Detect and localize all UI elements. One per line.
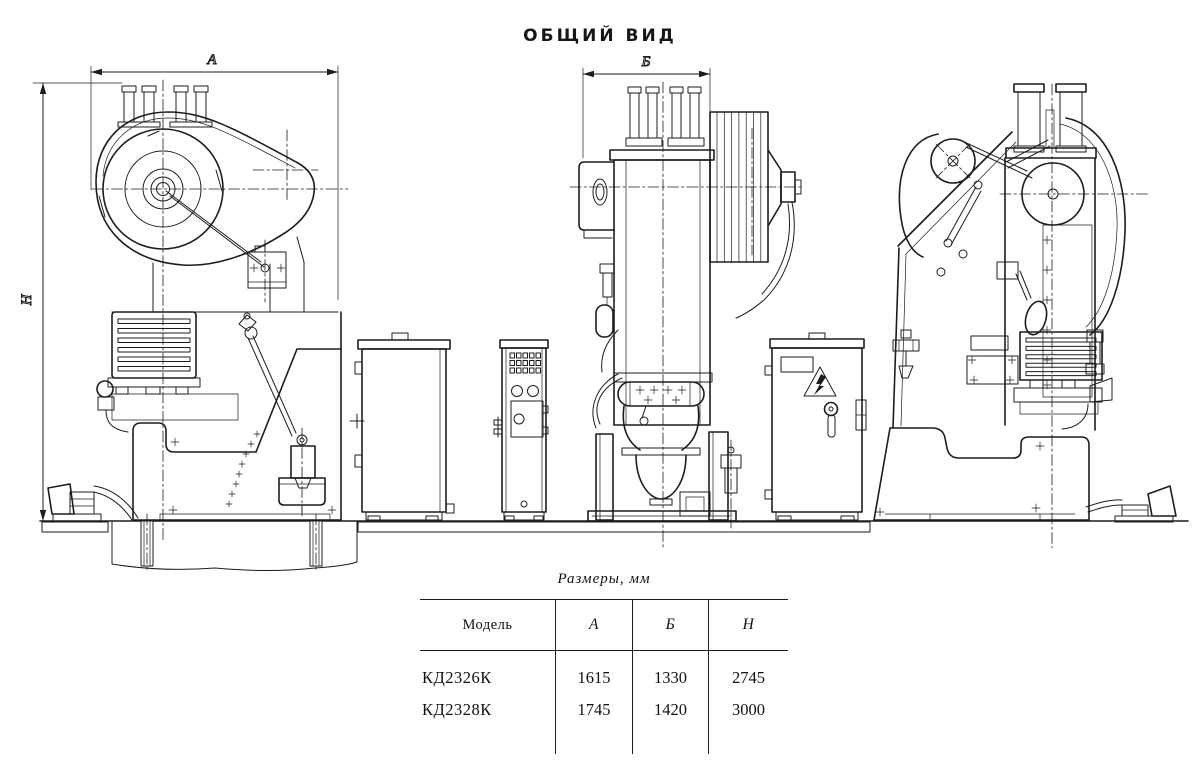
- table-spacer: [420, 651, 555, 662]
- table-cell-b: 1330: [632, 662, 708, 694]
- louver-grille: [108, 312, 200, 394]
- side-bracket: [579, 162, 614, 238]
- bolster-throat: [622, 406, 700, 505]
- anchor-bolt: [310, 514, 322, 572]
- table-spacer: [708, 726, 788, 754]
- high-voltage-sign: [804, 367, 836, 396]
- nameplate: [781, 357, 813, 372]
- table-header-h: Н: [708, 600, 788, 651]
- table-cell-b: 1420: [632, 694, 708, 726]
- front-column: [596, 434, 613, 520]
- panel-door: [511, 401, 543, 437]
- brake-rod: [166, 191, 286, 302]
- side-valve: [97, 381, 128, 432]
- dimensions-table: Размеры, мм Модель А Б Н КД2326К 1615 13…: [420, 568, 788, 754]
- table-header-a: А: [555, 600, 632, 651]
- air-valve: [596, 264, 614, 337]
- dim-b-label: Б: [641, 54, 651, 70]
- tie-rods: [626, 87, 704, 146]
- dimension-b: Б: [583, 54, 710, 158]
- table-header-b: Б: [632, 600, 708, 651]
- press-base: [874, 428, 1089, 520]
- control-pedestal: [494, 340, 548, 521]
- motor-pulley: [931, 139, 975, 183]
- dim-h-label: Н: [19, 293, 35, 306]
- control-knob: [528, 386, 539, 397]
- dim-a-label: А: [206, 52, 217, 68]
- side-valve: [893, 330, 919, 378]
- table-cell-a: 1745: [555, 694, 632, 726]
- clutch-housing: [710, 112, 801, 318]
- nameplate: [971, 336, 1008, 350]
- table-cell-model: КД2328К: [420, 694, 555, 726]
- drawing-sheet: ОБЩИЙ ВИД: [0, 0, 1200, 774]
- table-cell-a: 1615: [555, 662, 632, 694]
- hinge: [355, 362, 362, 374]
- die-set: [279, 428, 325, 516]
- hinge: [355, 455, 362, 467]
- button-grid: [510, 353, 541, 373]
- table-spacer: [555, 726, 632, 754]
- tie-rods: [118, 86, 212, 127]
- control-knob: [512, 386, 523, 397]
- table-spacer: [632, 726, 708, 754]
- foot-pedal-left: [48, 484, 138, 521]
- table-caption: Размеры, мм: [420, 568, 788, 590]
- table-cell-h: 3000: [708, 694, 788, 726]
- air-cylinders: [1014, 84, 1086, 152]
- foundation-block: [112, 514, 357, 572]
- ground-line: [40, 521, 1188, 532]
- dimension-h: Н: [19, 83, 122, 521]
- press-rear-view: [874, 84, 1150, 548]
- table-cell-model: КД2326К: [420, 662, 555, 694]
- press-base: [133, 349, 341, 520]
- supply-cabinet: [350, 333, 454, 521]
- table-spacer: [632, 651, 708, 662]
- electrical-cabinet: [765, 333, 866, 521]
- table-spacer: [555, 651, 632, 662]
- pedal-valve: [721, 440, 741, 528]
- press-side-view: [570, 82, 802, 548]
- table-spacer: [708, 651, 788, 662]
- table-cell-h: 2745: [708, 662, 788, 694]
- table-spacer: [420, 726, 555, 754]
- key-handle: [825, 403, 838, 438]
- press-front-view: [92, 80, 348, 540]
- foot-pedal-right: [1086, 486, 1176, 522]
- table-header-model: Модель: [420, 600, 555, 651]
- belt-tensioner: [937, 181, 982, 276]
- anchor-bolt: [141, 514, 153, 572]
- louver-grille: [1014, 332, 1102, 414]
